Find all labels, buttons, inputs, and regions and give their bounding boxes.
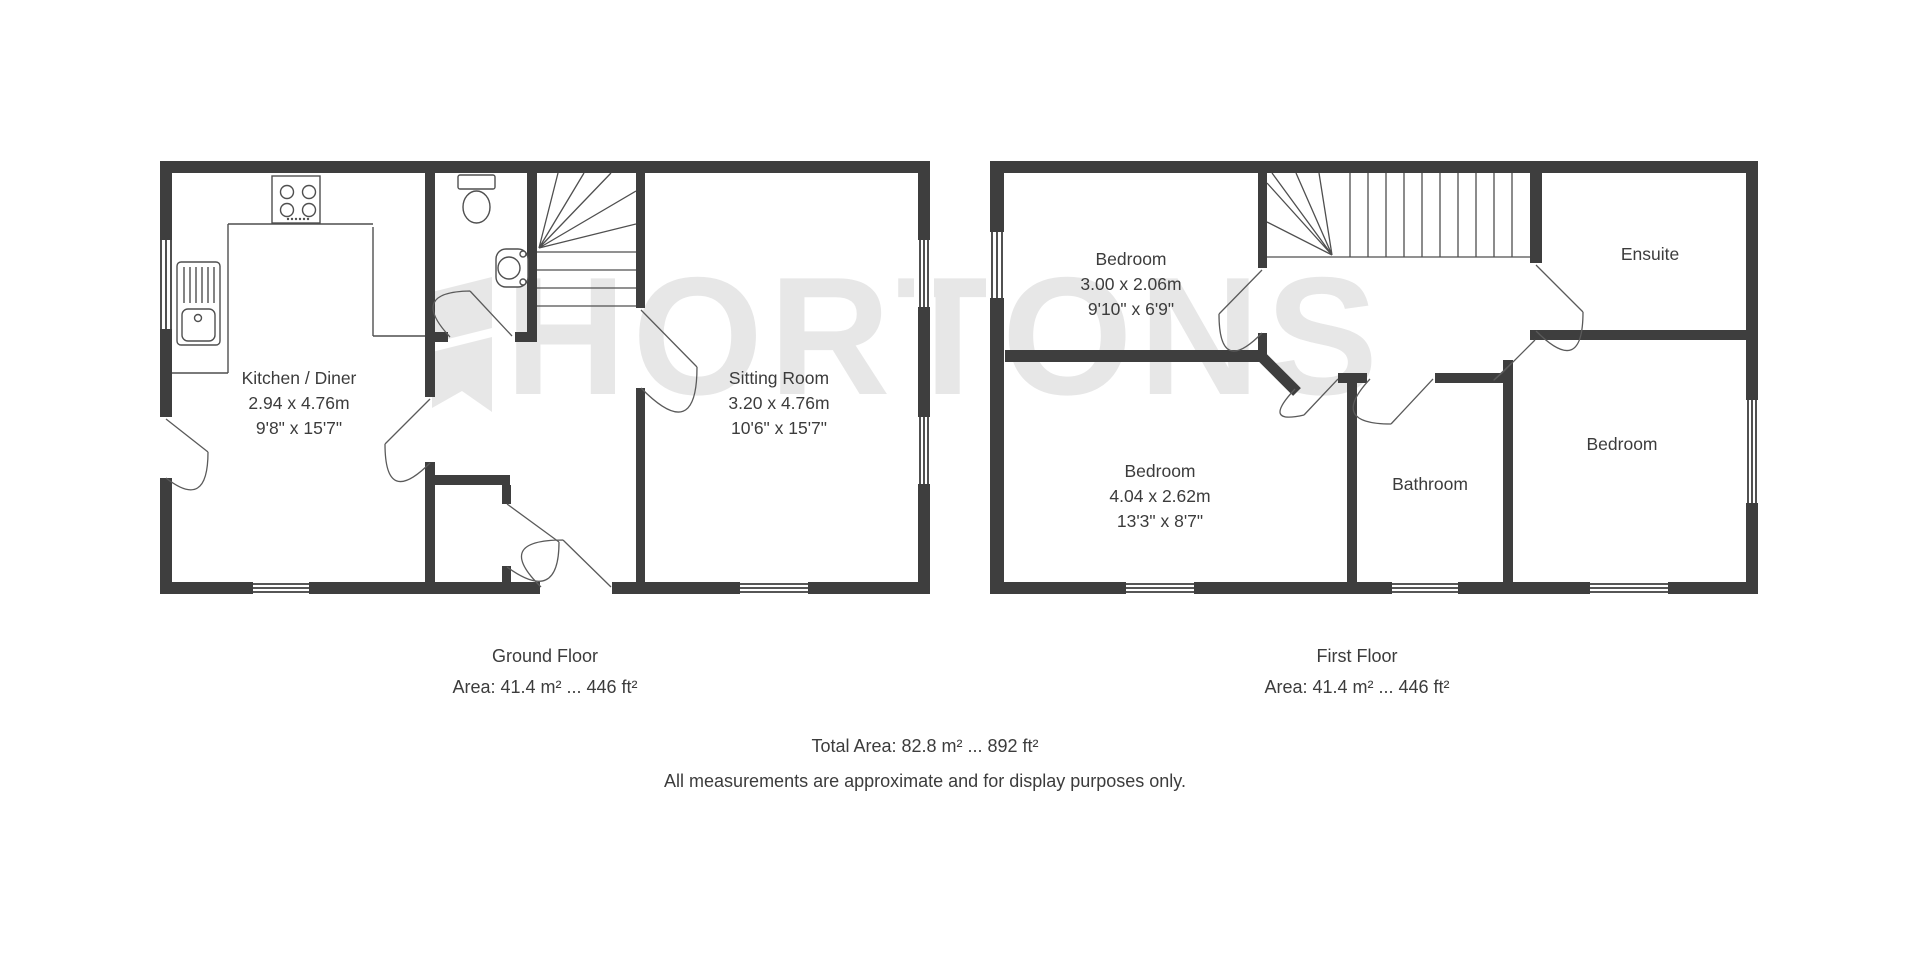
first-floor-caption: First Floor Area: 41.4 m² ... 446 ft² — [1264, 641, 1449, 703]
door-arc-icons-first — [1219, 265, 1583, 424]
first-floor-plan — [986, 161, 1762, 598]
room-label-sitting-room: Sitting Room 3.20 x 4.76m 10'6" x 15'7" — [728, 366, 829, 441]
floorplan-image: HORTONS — [0, 0, 1920, 960]
basin-icon — [496, 249, 528, 287]
hob-icon — [272, 176, 320, 223]
watermark-logo-icon — [432, 277, 492, 412]
room-label-ensuite: Ensuite — [1621, 242, 1679, 267]
disclaimer-text: All measurements are approximate and for… — [664, 771, 1186, 792]
room-label-bedroom-2: Bedroom 4.04 x 2.62m 13'3" x 8'7" — [1109, 459, 1210, 534]
stairs-icon-ground — [537, 173, 636, 306]
toilet-icon — [458, 175, 495, 223]
room-label-bathroom: Bathroom — [1392, 472, 1468, 497]
ground-floor-caption: Ground Floor Area: 41.4 m² ... 446 ft² — [452, 641, 637, 703]
room-label-bedroom-3: Bedroom — [1586, 432, 1657, 457]
stairs-icon-first — [1267, 173, 1530, 257]
diagonal-wall — [1260, 355, 1297, 392]
floorplan-drawing — [0, 0, 1920, 960]
room-label-bedroom-1: Bedroom 3.00 x 2.06m 9'10" x 6'9" — [1080, 247, 1181, 322]
total-area-text: Total Area: 82.8 m² ... 892 ft² — [811, 736, 1038, 757]
first-floor-walls — [990, 161, 1758, 594]
sink-icon — [177, 262, 220, 345]
room-label-kitchen: Kitchen / Diner 2.94 x 4.76m 9'8" x 15'7… — [242, 366, 357, 441]
